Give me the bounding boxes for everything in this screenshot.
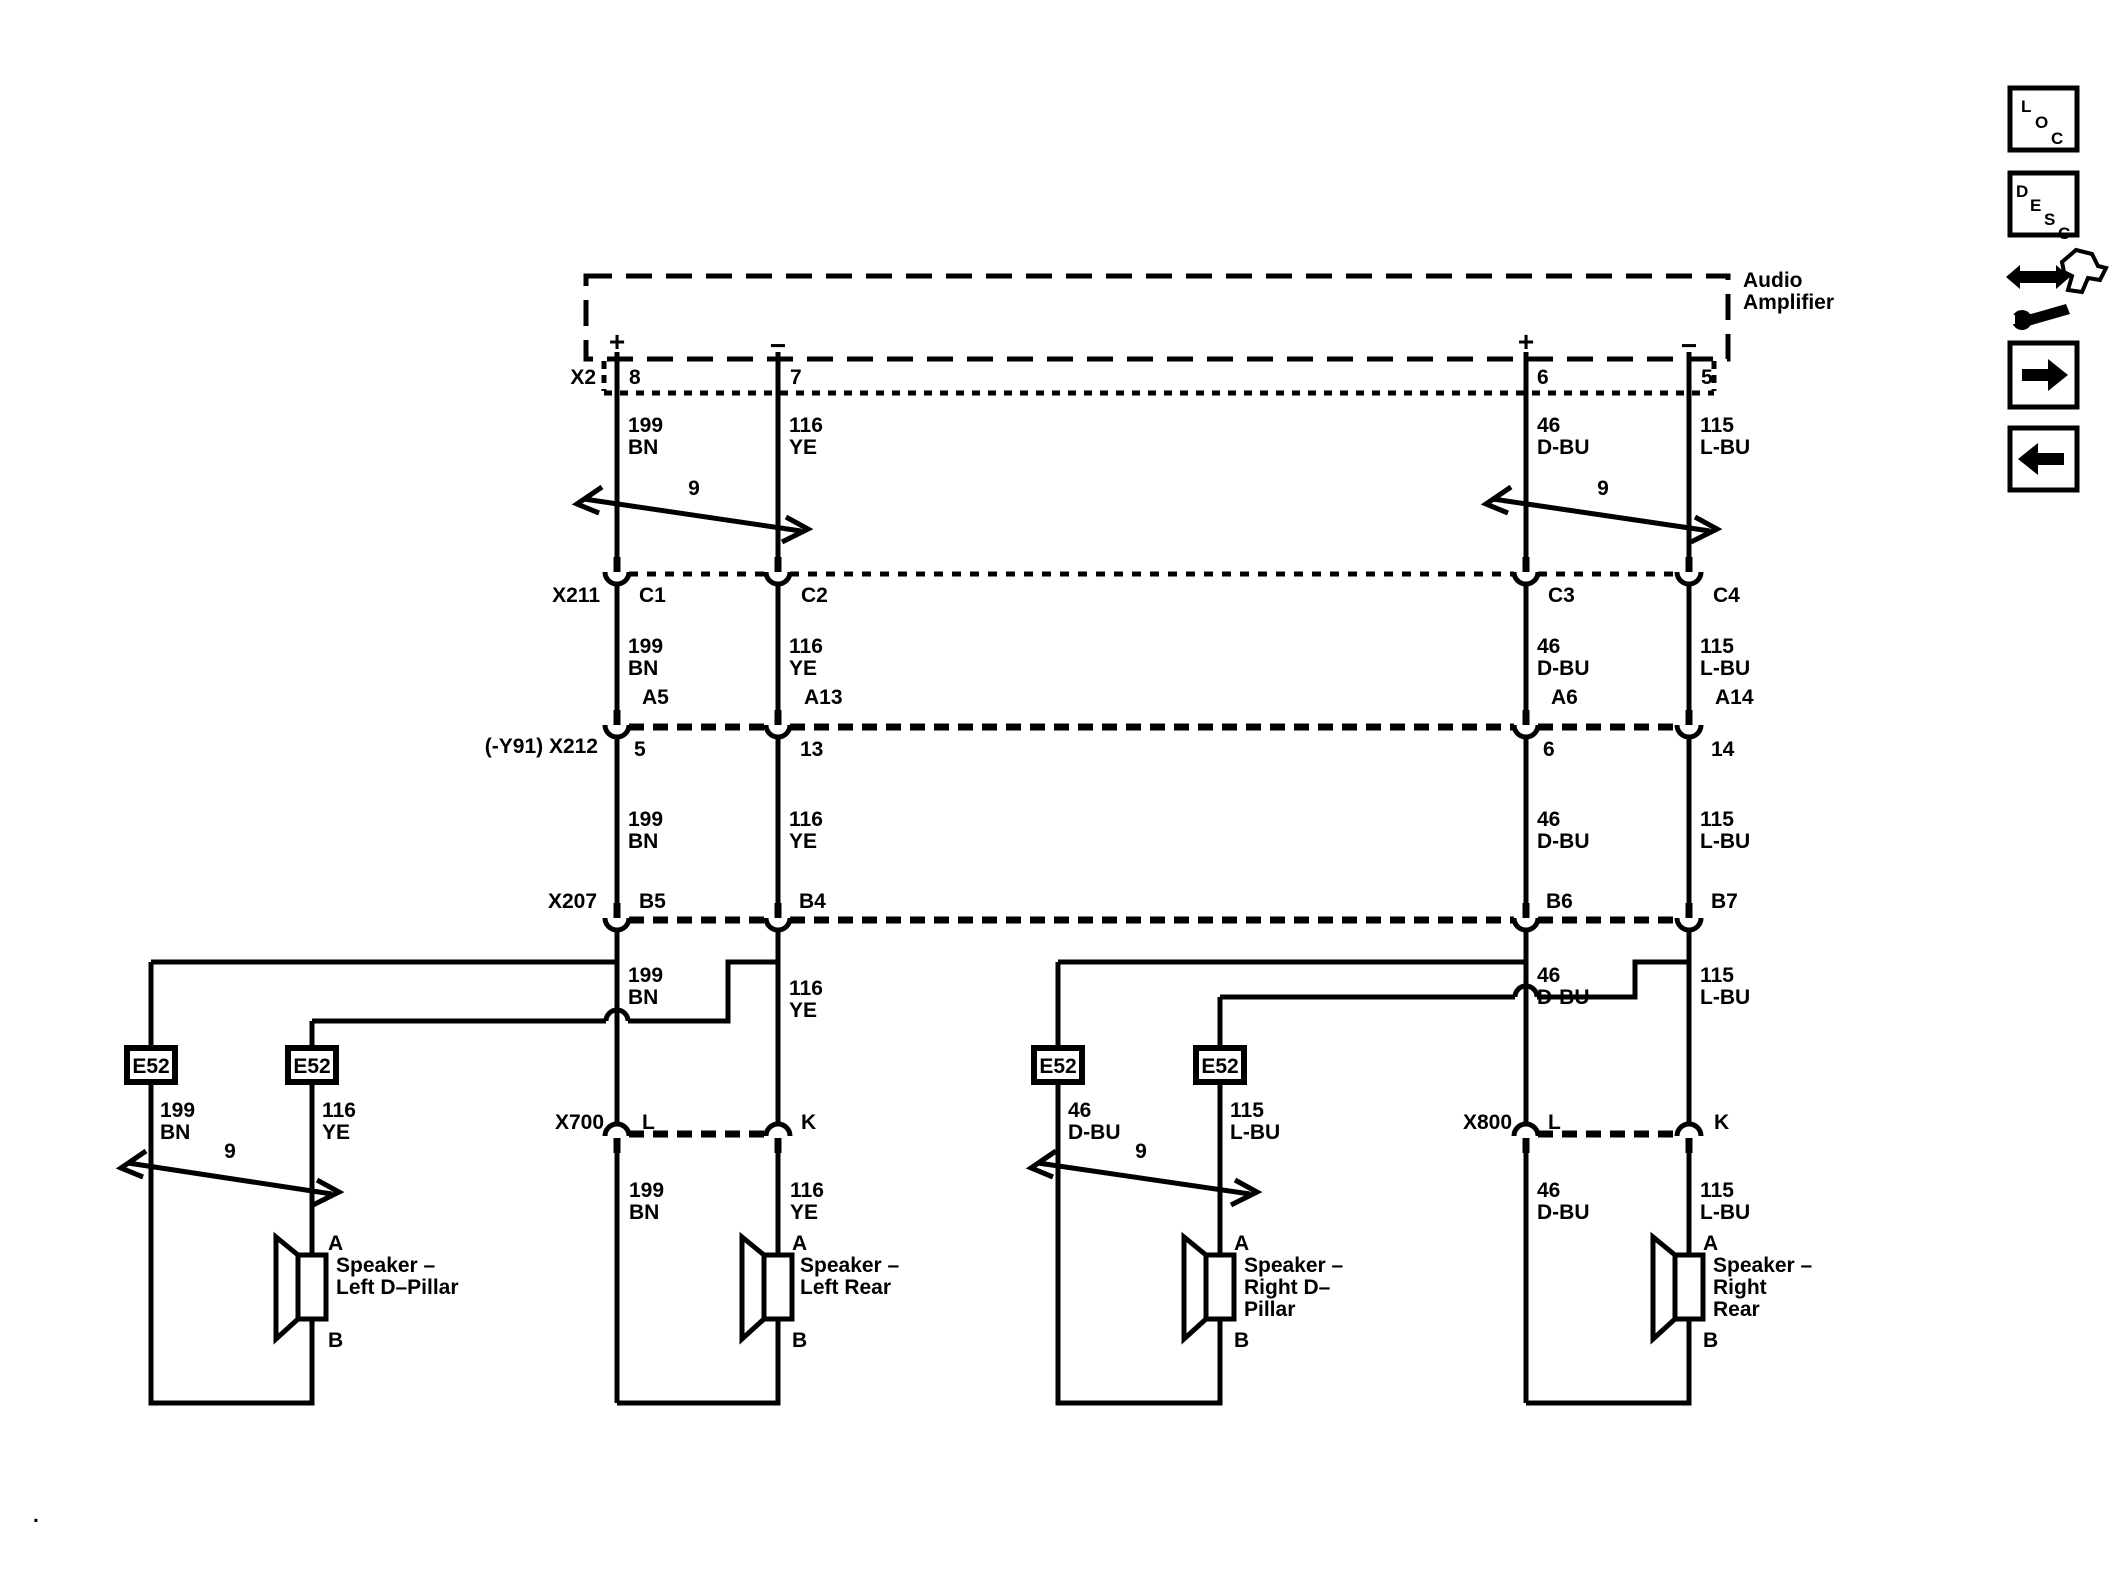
x207-pin-b6: B6 — [1546, 890, 1573, 913]
loc-button[interactable]: L O C — [2010, 88, 2077, 150]
terminal-b: B — [1703, 1329, 1718, 1352]
twisted-pair-lower-right: 9 — [1031, 1140, 1257, 1205]
amplifier-dashed-outline — [586, 276, 1728, 359]
icon-column: L O C D E S C — [2006, 88, 2106, 490]
wire-label: YE — [789, 436, 817, 459]
x207-label: X207 — [548, 890, 597, 913]
x212-pin-a14: A14 — [1715, 686, 1754, 709]
speaker-name-line: Speaker – — [800, 1254, 900, 1277]
x800-pin-l: L — [1548, 1111, 1561, 1134]
twisted-pair-symbols: 9 9 9 9 — [121, 477, 1717, 1205]
wire-116-ye-branch — [312, 962, 778, 1255]
speaker-body — [1206, 1255, 1234, 1319]
e52-label: E52 — [293, 1055, 330, 1078]
wire-label: D-BU — [1537, 1201, 1590, 1224]
wire-label: 199 — [628, 635, 663, 658]
twist-count: 9 — [224, 1140, 236, 1163]
speaker-body — [1675, 1255, 1703, 1319]
wire-label: 199 — [628, 414, 663, 437]
amplifier-label-line2: Amplifier — [1743, 291, 1834, 314]
connector-x212: A5 A13 A6 A14 (-Y91) X212 5 13 6 14 — [485, 686, 1754, 761]
wire-label: 46 — [1537, 808, 1560, 831]
x700-terminals — [605, 1124, 790, 1153]
terminal-a: A — [328, 1232, 343, 1255]
speaker-name-line: Left Rear — [800, 1276, 891, 1299]
twisted-pair-lower-left: 9 — [121, 1140, 339, 1205]
speaker-name-line: Right D– — [1244, 1276, 1331, 1299]
wire-label: 199 — [628, 964, 663, 987]
connector-x2: X2 8 7 6 5 — [570, 361, 1714, 393]
speaker-name-line: Speaker – — [336, 1254, 436, 1277]
loc-letter: O — [2035, 113, 2048, 132]
desc-button[interactable]: D E S C — [2010, 173, 2077, 243]
twisted-pair-upper-left: 9 — [577, 477, 808, 542]
terminal-b: B — [1234, 1329, 1249, 1352]
wire-label: 116 — [789, 977, 823, 1000]
wire-label: 115 — [1700, 414, 1734, 437]
loc-letter: L — [2021, 97, 2031, 116]
x207-pin-b5: B5 — [639, 890, 666, 913]
wire-label: 46 — [1537, 964, 1560, 987]
x211-pin-c3: C3 — [1548, 584, 1575, 607]
x212-pin-5: 5 — [634, 738, 646, 761]
speaker-cone — [1653, 1237, 1675, 1339]
e52-label: E52 — [1039, 1055, 1076, 1078]
e52-grommets: E52 E52 E52 E52 — [127, 1048, 1244, 1082]
wire-label: YE — [789, 830, 817, 853]
wiring-diagram-page: Audio Amplifier + − + − X2 8 7 6 5 — [0, 0, 2124, 1593]
footer-dot: . — [33, 1504, 39, 1527]
wire-label: 46 — [1068, 1099, 1091, 1122]
twist-count: 9 — [688, 477, 700, 500]
speaker-right-d-pillar: A B Speaker – Right D– Pillar — [1184, 1232, 1344, 1352]
desc-letter: D — [2016, 182, 2028, 201]
x212-pin-a5: A5 — [642, 686, 669, 709]
speaker-name-line: Left D–Pillar — [336, 1276, 459, 1299]
x2-pin-8: 8 — [629, 366, 641, 389]
wire-label: 46 — [1537, 635, 1560, 658]
x700-pin-l: L — [642, 1111, 655, 1134]
x800-terminals — [1514, 1124, 1701, 1153]
wire-label: BN — [628, 830, 658, 853]
wire-label: D-BU — [1537, 657, 1590, 680]
next-page-button[interactable] — [2010, 343, 2077, 407]
x2-pin-5: 5 — [1701, 366, 1713, 389]
twist-count: 9 — [1597, 477, 1609, 500]
speaker-cone — [1184, 1237, 1206, 1339]
wire-label: L-BU — [1230, 1121, 1280, 1144]
wire-115-lbu-branch — [1220, 962, 1689, 1255]
e52-label: E52 — [1201, 1055, 1238, 1078]
e52-label: E52 — [132, 1055, 169, 1078]
amplifier-label-line1: Audio — [1743, 269, 1802, 292]
x212-label: (-Y91) X212 — [485, 735, 598, 758]
wire-label: YE — [790, 1201, 818, 1224]
speaker-name-line: Pillar — [1244, 1298, 1295, 1321]
x2-pin-6: 6 — [1537, 366, 1549, 389]
wire-label: BN — [628, 657, 658, 680]
connector-x207: X207 B5 B4 B6 B7 — [548, 890, 1738, 930]
wire-runs — [151, 352, 1689, 1403]
x211-terminals — [605, 557, 1701, 584]
x212-pin-6: 6 — [1543, 738, 1555, 761]
terminal-b: B — [328, 1329, 343, 1352]
audio-amplifier-box: Audio Amplifier + − + − — [586, 269, 1834, 361]
speaker-name-line: Right — [1713, 1276, 1767, 1299]
speaker-name-line: Speaker – — [1713, 1254, 1813, 1277]
wire-label: 116 — [789, 635, 823, 658]
x700-label: X700 — [555, 1111, 604, 1134]
wire-label: YE — [789, 657, 817, 680]
speaker-body — [764, 1255, 792, 1319]
wire-label: 46 — [1537, 1179, 1560, 1202]
x211-pin-c2: C2 — [801, 584, 828, 607]
terminal-a: A — [1703, 1232, 1718, 1255]
wire-label: BN — [628, 436, 658, 459]
repair-tools-icon[interactable] — [2006, 250, 2106, 330]
x211-pin-c4: C4 — [1713, 584, 1740, 607]
wire-label: 199 — [628, 808, 663, 831]
x211-label: X211 — [552, 584, 600, 607]
x2-pin-7: 7 — [790, 366, 802, 389]
x212-pin-13: 13 — [800, 738, 823, 761]
wire-label: D-BU — [1537, 830, 1590, 853]
speaker-cone — [742, 1237, 764, 1339]
speaker-body — [298, 1255, 326, 1319]
x800-label: X800 — [1463, 1111, 1512, 1134]
wire-label: L-BU — [1700, 657, 1750, 680]
x800-pin-k: K — [1714, 1111, 1729, 1134]
x207-pin-b4: B4 — [799, 890, 826, 913]
desc-letter: C — [2058, 224, 2070, 243]
x212-pin-a13: A13 — [804, 686, 843, 709]
wire-label: 46 — [1537, 414, 1560, 437]
wire-label: D-BU — [1537, 986, 1590, 1009]
loc-letter: C — [2051, 129, 2063, 148]
x212-pin-14: 14 — [1711, 738, 1735, 761]
wire-label: L-BU — [1700, 1201, 1750, 1224]
speaker-left-rear: A B Speaker – Left Rear — [742, 1232, 900, 1352]
x211-pin-c1: C1 — [639, 584, 666, 607]
wire-label: YE — [322, 1121, 350, 1144]
wire-label: D-BU — [1068, 1121, 1121, 1144]
wire-label: 115 — [1700, 964, 1734, 987]
wire-label: L-BU — [1700, 436, 1750, 459]
wire-label: L-BU — [1700, 830, 1750, 853]
wire-label: 115 — [1230, 1099, 1264, 1122]
previous-page-button[interactable] — [2010, 428, 2077, 490]
speaker-left-d-pillar: A B Speaker – Left D–Pillar — [276, 1232, 459, 1352]
x207-pin-b7: B7 — [1711, 890, 1738, 913]
speaker-right-rear: A B Speaker – Right Rear — [1653, 1232, 1813, 1352]
wire-label: 116 — [789, 808, 823, 831]
x2-label: X2 — [570, 366, 596, 389]
wire-label: 199 — [160, 1099, 195, 1122]
connector-x211: X211 C1 C2 C3 C4 — [552, 557, 1740, 607]
wire-label: D-BU — [1537, 436, 1590, 459]
wire-label: 115 — [1700, 635, 1734, 658]
wire-label: BN — [160, 1121, 190, 1144]
speaker-cone — [276, 1237, 298, 1339]
speaker-name-line: Speaker – — [1244, 1254, 1344, 1277]
wire-label: 199 — [629, 1179, 664, 1202]
speaker-name-line: Rear — [1713, 1298, 1760, 1321]
wire-label: 116 — [790, 1179, 824, 1202]
wire-label: 116 — [322, 1099, 356, 1122]
wire-label: BN — [629, 1201, 659, 1224]
terminal-b: B — [792, 1329, 807, 1352]
wire-labels: 199 BN 116 YE 46 D-BU 115 L-BU 199 BN 11… — [160, 414, 1750, 1224]
wire-label: 115 — [1700, 1179, 1734, 1202]
pointer-outline — [2062, 250, 2106, 292]
twisted-pair-upper-right: 9 — [1486, 477, 1717, 542]
wire-199-bn-branch — [151, 962, 617, 1403]
wire-label: L-BU — [1700, 986, 1750, 1009]
x212-pin-a6: A6 — [1551, 686, 1578, 709]
wire-46-dbu-branch — [1058, 962, 1526, 1403]
terminal-a: A — [792, 1232, 807, 1255]
desc-letter: S — [2044, 210, 2055, 229]
x700-pin-k: K — [801, 1111, 816, 1134]
terminal-a: A — [1234, 1232, 1249, 1255]
wire-label: 116 — [789, 414, 823, 437]
desc-letter: E — [2030, 196, 2041, 215]
wire-label: YE — [789, 999, 817, 1022]
wire-label: BN — [628, 986, 658, 1009]
wire-label: 115 — [1700, 808, 1734, 831]
wrench-jaw — [2006, 315, 2015, 324]
twist-count: 9 — [1135, 1140, 1147, 1163]
